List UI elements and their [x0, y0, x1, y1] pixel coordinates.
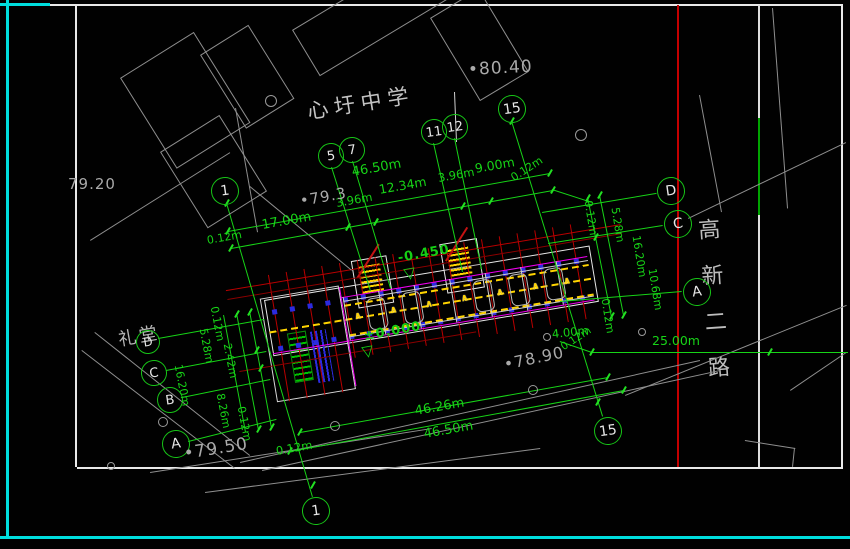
school-name-label: 心圩中学	[305, 79, 416, 126]
cad-site-plan-view: 心圩中学 礼堂 高 新 二 路 ∧∧∧∧∧∧∧ -0.450 ±0.000 ▽ …	[0, 0, 850, 549]
site-circle	[107, 462, 115, 470]
dimension-label: 3.96m	[437, 165, 476, 185]
door-swing-icon: ∧	[460, 292, 470, 304]
column-marker	[313, 340, 319, 346]
road-char: 高	[697, 211, 721, 244]
column-marker	[289, 306, 295, 312]
column-marker	[307, 303, 313, 309]
drawing-line	[842, 4, 844, 467]
site-circle	[638, 328, 646, 336]
elevation-triangle-icon: ▽	[361, 343, 375, 360]
grid-bubble: 15	[592, 415, 624, 447]
elevation-triangle-icon: ▽	[403, 265, 417, 282]
drawing-line	[6, 0, 9, 538]
dimension-label: 2.42m	[221, 342, 240, 379]
drawing-line	[50, 4, 843, 6]
door-swing-icon: ∧	[531, 280, 541, 292]
spot-elevation-label: 79.20	[68, 175, 116, 193]
door-swing-icon: ∧	[389, 304, 399, 316]
grid-bubble: C	[139, 358, 168, 387]
drawing-line	[745, 440, 795, 449]
site-circle	[265, 95, 277, 107]
column-marker	[278, 346, 284, 352]
grid-bubble: 15	[496, 93, 528, 125]
column-marker	[296, 343, 302, 349]
dimension-label: 5.28m	[609, 206, 627, 243]
door-swing-icon: ∧	[562, 275, 572, 287]
drawing-line	[699, 95, 722, 212]
column-marker	[331, 337, 337, 343]
site-building-outline	[430, 0, 529, 101]
drawing-line	[772, 8, 788, 208]
dimension-label: 25.00m	[652, 333, 700, 348]
site-circle	[158, 417, 168, 427]
spot-elevation-label: •78.90	[502, 342, 566, 373]
dimension-label: 17.00m	[261, 209, 313, 232]
dimension-tick-icon	[310, 481, 316, 489]
site-circle	[543, 333, 551, 341]
drawing-line	[759, 5, 761, 467]
drawing-line	[792, 448, 795, 467]
drawing-line	[592, 352, 848, 353]
door-swing-icon: ∧	[424, 298, 434, 310]
drawing-line	[688, 142, 846, 219]
dimension-label: 0.12m	[275, 438, 314, 458]
site-building-outline	[292, 0, 450, 76]
drawing-line	[790, 352, 847, 391]
site-circle	[528, 385, 538, 395]
column-marker	[325, 300, 331, 306]
grid-bubble: D	[655, 175, 687, 207]
dimension-label: 8.26m	[214, 392, 233, 429]
dimension-label: 46.50m	[423, 418, 475, 441]
spot-elevation-label: •79.50	[182, 434, 249, 464]
site-circle	[330, 421, 340, 431]
drawing-line	[759, 118, 761, 215]
dimension-label: 10.68m	[646, 267, 665, 311]
column-marker	[272, 309, 278, 315]
drawing-line	[625, 305, 846, 396]
dimension-label: 0.12m	[599, 297, 617, 334]
dimension-label: 12.34m	[378, 174, 428, 197]
dimension-label: 46.26m	[414, 395, 466, 418]
dimension-tick-icon	[547, 169, 553, 177]
door-swing-icon: ∧	[495, 286, 505, 298]
grid-bubble: 1	[300, 495, 332, 527]
road-char: 二	[704, 303, 728, 336]
spot-elevation-label: •80.40	[467, 57, 533, 80]
grid-bubble: C	[662, 208, 694, 240]
drawing-line	[0, 536, 850, 539]
drawing-line	[77, 467, 843, 469]
door-swing-icon: ∧	[353, 310, 363, 322]
site-circle	[575, 129, 587, 141]
drawing-line	[76, 4, 78, 467]
